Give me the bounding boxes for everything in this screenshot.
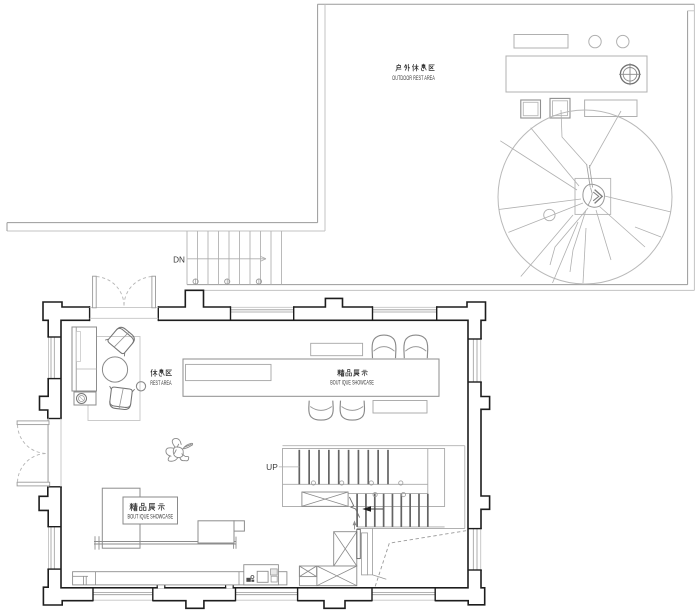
svg-text:BOUT IQUE SHOWCASE: BOUT IQUE SHOWCASE — [128, 514, 174, 521]
svg-text:DN: DN — [173, 255, 185, 264]
svg-text:OUTDOOR REST AREA: OUTDOOR REST AREA — [392, 75, 435, 82]
svg-text:REST AREA: REST AREA — [150, 380, 172, 387]
svg-text:BOUT IQUE SHOWCASE: BOUT IQUE SHOWCASE — [330, 380, 374, 387]
svg-text:UP: UP — [266, 462, 278, 472]
